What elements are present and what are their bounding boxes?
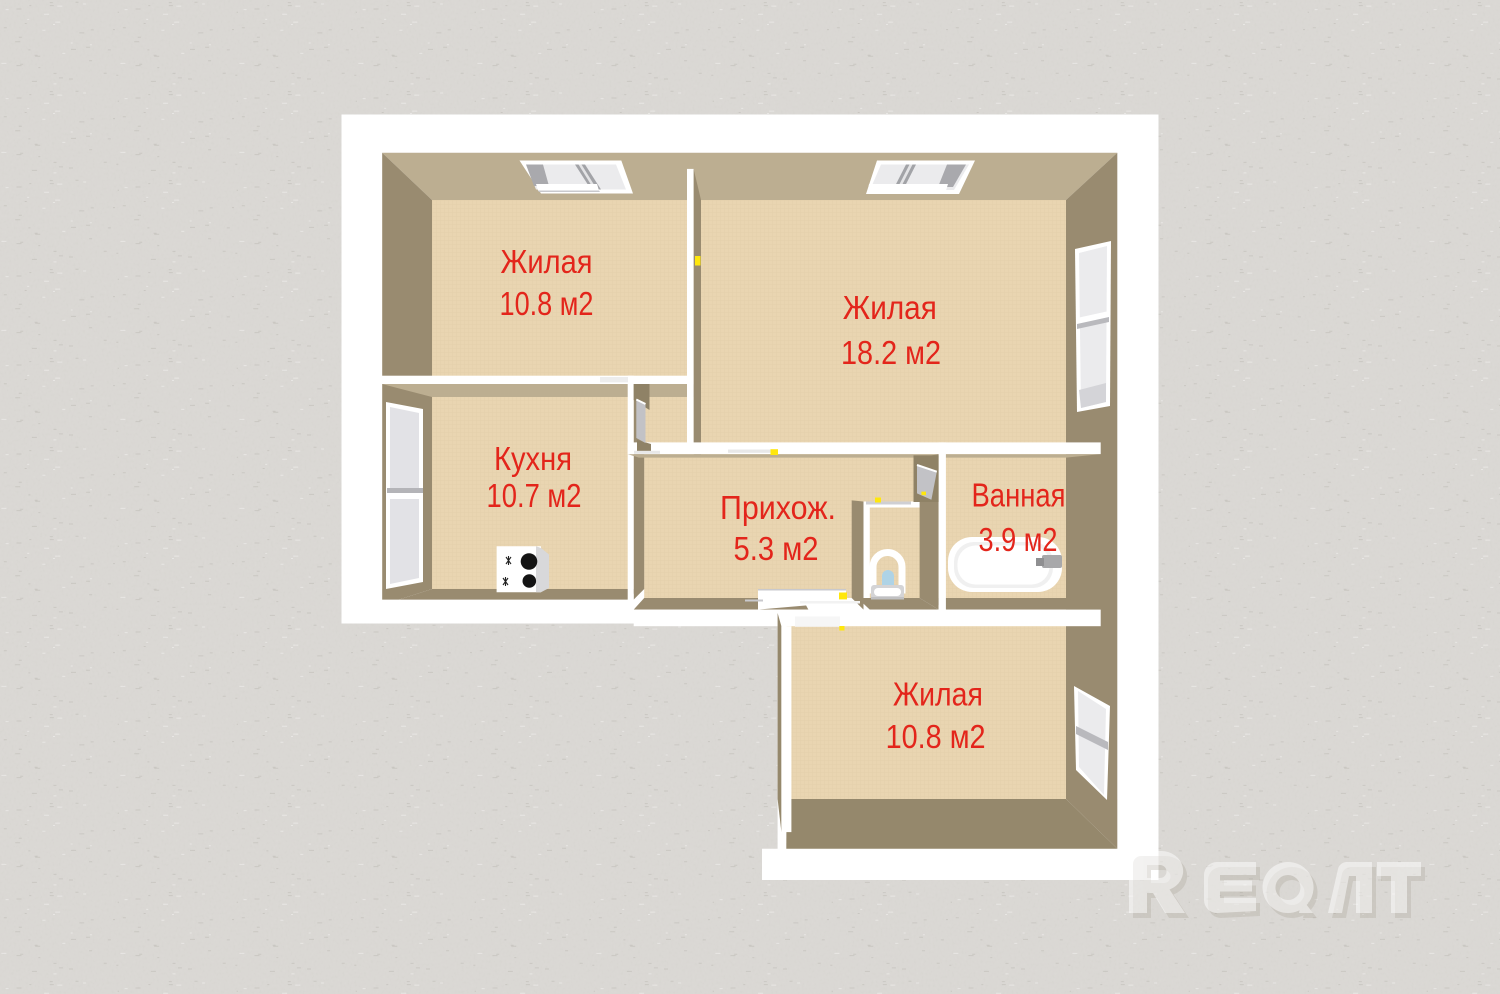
svg-text:3.9 м2: 3.9 м2 bbox=[979, 521, 1058, 558]
svg-text:Ванная: Ванная bbox=[972, 477, 1066, 514]
svg-text:10.7 м2: 10.7 м2 bbox=[487, 477, 582, 514]
svg-text:Жилая: Жилая bbox=[501, 243, 593, 280]
svg-text:Прихож.: Прихож. bbox=[720, 489, 836, 526]
svg-text:5.3 м2: 5.3 м2 bbox=[734, 530, 819, 567]
svg-text:Кухня: Кухня bbox=[494, 440, 572, 477]
svg-text:Жилая: Жилая bbox=[893, 676, 983, 713]
svg-text:Жилая: Жилая bbox=[843, 289, 937, 326]
svg-text:18.2 м2: 18.2 м2 bbox=[841, 334, 941, 371]
svg-text:10.8 м2: 10.8 м2 bbox=[886, 718, 986, 755]
svg-text:10.8 м2: 10.8 м2 bbox=[500, 285, 594, 322]
